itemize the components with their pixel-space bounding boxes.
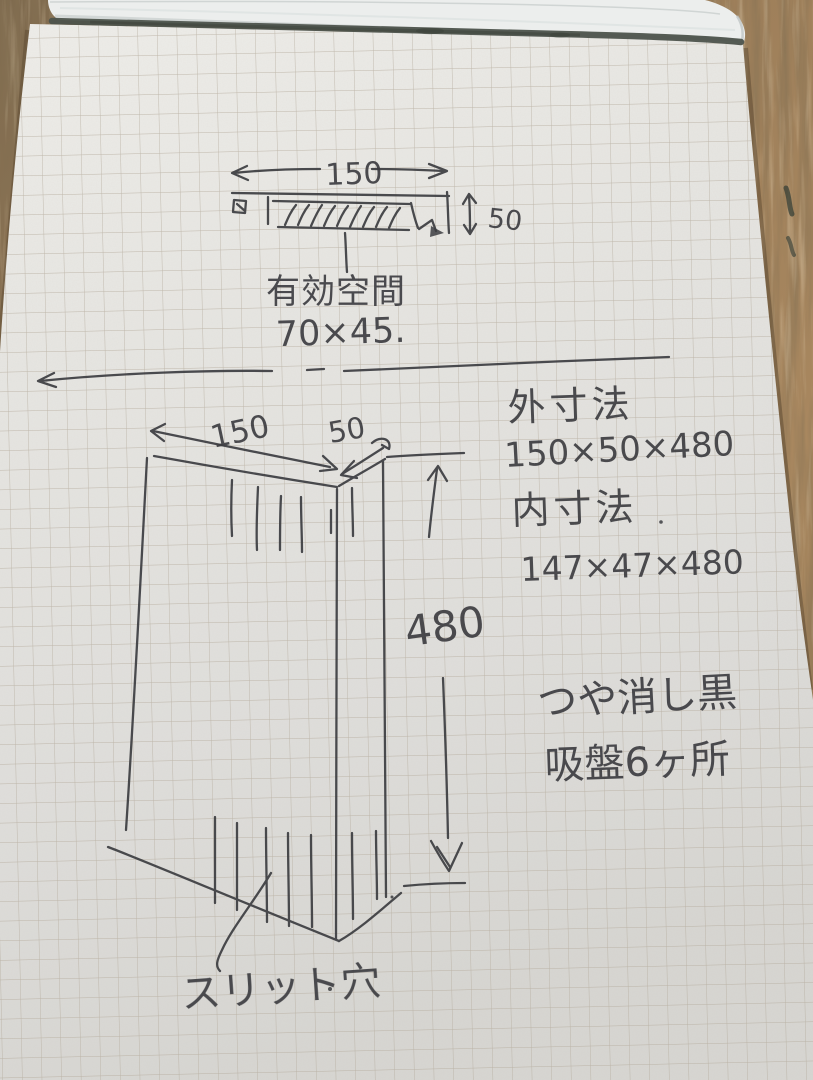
main-depth-label: 50 [326,410,368,450]
effective-space-caption: 有効空間 [266,272,406,312]
dimension-arrow-50 [469,196,470,232]
slit-line [376,831,377,899]
corner-edge [336,489,337,939]
notebook-photo: 150 50 有効空間 70×45. 150 50 480 スリット穴 外寸法 … [0,0,813,1080]
slit-line [231,480,232,536]
inner-dimension-title: 内寸法 [511,485,638,533]
slit-line [311,835,312,927]
slit-line [257,487,258,550]
ink-dot [391,896,394,899]
top-width-label: 150 [325,156,383,193]
slit-line [288,833,289,926]
slit-line [280,496,281,550]
binding-smudge [416,28,444,34]
binding-smudge [550,32,570,37]
ink-dot [659,520,663,524]
slit-line [266,828,267,922]
top-height-label: 50 [486,203,523,237]
slit-line [352,488,353,536]
suction-cup-note: 吸盤6ヶ所 [544,737,731,789]
slit-line [352,833,353,919]
separator-dash [307,369,324,370]
inner-dimension-value: 147×47×480 [520,542,744,589]
outer-dimension-title: 外寸法 [507,382,634,430]
effective-space-size: 70×45. [275,311,406,355]
slit-line [301,497,302,552]
notebook-scene: 150 50 有効空間 70×45. 150 50 480 スリット穴 外寸法 … [0,0,813,1080]
